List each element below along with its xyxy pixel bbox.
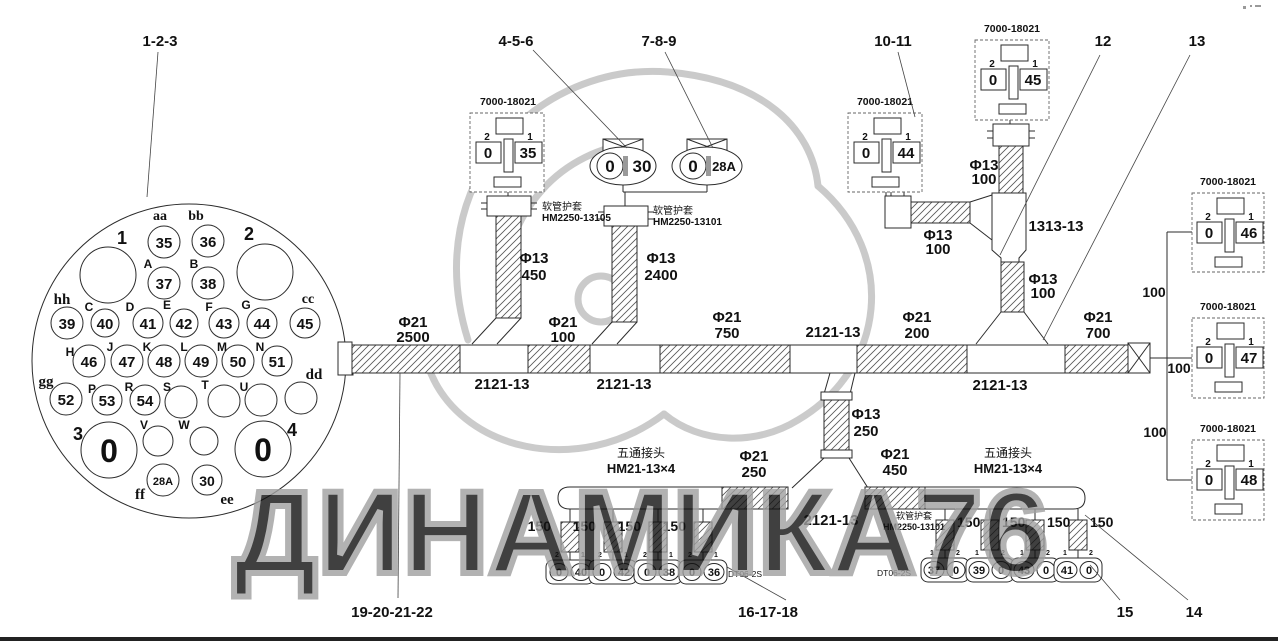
trunk-end-fitting [1128, 343, 1150, 373]
svg-text:2: 2 [1205, 459, 1211, 470]
svg-text:U: U [240, 380, 249, 394]
svg-text:52: 52 [58, 392, 75, 409]
svg-text:cc: cc [302, 292, 314, 307]
callout-12: 12 [1095, 33, 1112, 50]
svg-text:N: N [256, 340, 265, 354]
svg-text:2500: 2500 [396, 329, 429, 346]
svg-text:43: 43 [216, 316, 233, 333]
svg-text:Φ13: Φ13 [852, 406, 881, 423]
svg-text:1: 1 [1063, 550, 1067, 557]
oval-right-value: 28A [712, 159, 736, 174]
svg-text:45: 45 [1025, 72, 1042, 89]
svg-text:T: T [201, 378, 209, 392]
hole-label: 3 [73, 424, 83, 444]
svg-text:hh: hh [54, 292, 71, 308]
svg-text:36: 36 [200, 234, 217, 251]
svg-text:0: 0 [1205, 350, 1213, 367]
site-watermark: ДИНАМИКА76 [233, 467, 1048, 599]
svg-text:53: 53 [99, 393, 116, 410]
callout-4-5-6: 4-5-6 [498, 33, 533, 50]
svg-text:1: 1 [1248, 337, 1254, 348]
svg-text:45: 45 [297, 316, 314, 333]
svg-text:软管护套: 软管护套 [542, 200, 582, 213]
connector-block-46: 2 0 1 46 7000-18021 [1192, 176, 1264, 272]
oval-right-value: 30 [633, 157, 652, 176]
oval-left-value: 0 [605, 157, 614, 176]
svg-text:2: 2 [862, 132, 868, 143]
wiring-harness-diagram: 1 2 3 4 0 0 aa35 bb36 A37 B38 hh39 C40 D… [0, 0, 1278, 641]
svg-text:700: 700 [1085, 325, 1110, 342]
svg-text:250: 250 [853, 423, 878, 440]
svg-text:C: C [85, 300, 94, 314]
svg-text:A: A [144, 257, 153, 271]
svg-text:50: 50 [230, 354, 247, 371]
svg-text:150: 150 [1090, 514, 1114, 530]
svg-text:2: 2 [484, 132, 490, 143]
trunk-junction-4 [967, 345, 1065, 373]
connector-block-47: 2 0 1 47 7000-18021 [1192, 301, 1264, 398]
svg-text:五通接头: 五通接头 [617, 445, 665, 460]
svg-text:35: 35 [156, 235, 173, 252]
svg-text:1: 1 [527, 132, 533, 143]
svg-text:2121-13: 2121-13 [805, 324, 860, 341]
svg-text:W: W [178, 418, 190, 432]
svg-text:51: 51 [269, 354, 286, 371]
part-number: 7000-18021 [1200, 301, 1256, 313]
svg-text:HM2250-13101: HM2250-13101 [653, 217, 722, 228]
svg-text:2121-13: 2121-13 [596, 376, 651, 393]
y-junction-1313-13 [992, 193, 1026, 262]
svg-text:41: 41 [140, 316, 157, 333]
callout-16-17-18: 16-17-18 [738, 604, 798, 621]
callout-15: 15 [1117, 604, 1134, 621]
svg-text:K: K [143, 340, 152, 354]
svg-text:aa: aa [153, 209, 167, 224]
connector-block-48: 2 0 1 48 7000-18021 [1192, 423, 1264, 520]
svg-text:M: M [217, 340, 227, 354]
svg-text:49: 49 [193, 354, 210, 371]
svg-text:35: 35 [520, 145, 537, 162]
svg-text:L: L [180, 340, 187, 354]
part-number: 7000-18021 [480, 96, 536, 108]
svg-text:100: 100 [550, 329, 575, 346]
svg-text:2: 2 [1205, 212, 1211, 223]
svg-text:2121-13: 2121-13 [972, 377, 1027, 394]
hole-label: 2 [244, 224, 254, 244]
svg-text:0: 0 [484, 145, 492, 162]
callout-1-2-3: 1-2-3 [142, 33, 177, 50]
svg-text:P: P [88, 382, 96, 396]
part-number: 7000-18021 [1200, 176, 1256, 188]
pin-field: aa35 bb36 A37 B38 hh39 C40 D41 E42 F43 G… [39, 209, 323, 508]
svg-text:44: 44 [898, 145, 915, 162]
corner-marks [1243, 5, 1261, 9]
connector-block-44: 2 0 1 44 7000-18021 [848, 96, 922, 192]
svg-text:100: 100 [1142, 284, 1166, 300]
svg-text:S: S [163, 380, 171, 394]
callout-10-11: 10-11 [874, 33, 912, 50]
svg-text:200: 200 [904, 325, 929, 342]
svg-text:42: 42 [176, 316, 193, 333]
svg-text:450: 450 [521, 267, 546, 284]
svg-text:1: 1 [1248, 212, 1254, 223]
svg-text:bb: bb [188, 209, 204, 224]
svg-text:0: 0 [989, 72, 997, 89]
svg-text:44: 44 [254, 316, 271, 333]
svg-text:40: 40 [97, 316, 114, 333]
svg-text:150: 150 [1047, 514, 1071, 530]
trunk-junction-1 [460, 345, 528, 373]
svg-text:1313-13: 1313-13 [1028, 218, 1083, 235]
callout-14: 14 [1186, 604, 1203, 621]
hole-value: 0 [254, 432, 272, 468]
svg-text:gg: gg [39, 374, 55, 390]
svg-text:B: B [190, 257, 199, 271]
hole-label: 4 [287, 420, 297, 440]
svg-text:D: D [126, 300, 135, 314]
hole-value: 0 [100, 433, 118, 469]
oval-connector-30: 0 30 [590, 139, 656, 185]
svg-text:100: 100 [1030, 285, 1055, 302]
svg-text:软管护套: 软管护套 [653, 204, 693, 217]
svg-text:41: 41 [1061, 565, 1073, 577]
connector-block-45: 2 0 1 45 7000-18021 [975, 23, 1049, 120]
svg-text:100: 100 [1143, 424, 1167, 440]
part-number: 7000-18021 [984, 23, 1040, 35]
svg-text:2400: 2400 [644, 267, 677, 284]
svg-text:46: 46 [1241, 225, 1258, 242]
svg-text:100: 100 [971, 171, 996, 188]
svg-text:Φ21: Φ21 [1084, 309, 1113, 326]
svg-text:Φ21: Φ21 [881, 446, 910, 463]
svg-text:28A: 28A [153, 476, 173, 488]
svg-text:五通接头: 五通接头 [984, 445, 1032, 460]
svg-text:2: 2 [1089, 550, 1093, 557]
svg-text:0: 0 [1205, 225, 1213, 242]
callout-7-8-9: 7-8-9 [641, 33, 676, 50]
svg-text:54: 54 [137, 393, 154, 410]
trunk-junction-3 [790, 345, 857, 373]
main-trunk [338, 342, 1150, 375]
svg-text:48: 48 [156, 354, 173, 371]
svg-text:E: E [163, 298, 171, 312]
oval-connector-28A: 0 28A [672, 139, 742, 185]
svg-text:2121-13: 2121-13 [474, 376, 529, 393]
part-number: 7000-18021 [1200, 423, 1256, 435]
bottom-edge-bar [0, 637, 1278, 641]
svg-text:37: 37 [156, 276, 173, 293]
svg-text:Φ13: Φ13 [520, 250, 549, 267]
hole-label: 1 [117, 228, 127, 248]
svg-text:ff: ff [135, 487, 146, 503]
svg-text:46: 46 [81, 354, 98, 371]
svg-text:Φ13: Φ13 [647, 250, 676, 267]
svg-text:38: 38 [200, 276, 217, 293]
svg-text:30: 30 [199, 473, 215, 489]
svg-text:2: 2 [989, 59, 995, 70]
part-number: 7000-18021 [857, 96, 913, 108]
svg-text:750: 750 [714, 325, 739, 342]
svg-text:1: 1 [1248, 459, 1254, 470]
svg-text:Φ21: Φ21 [740, 448, 769, 465]
svg-text:1: 1 [905, 132, 911, 143]
trunk-junction-2 [590, 345, 660, 373]
svg-text:0: 0 [1205, 472, 1213, 489]
svg-text:G: G [241, 298, 250, 312]
callout-19-20-21-22: 19-20-21-22 [351, 604, 433, 621]
svg-text:H: H [66, 345, 75, 359]
oval-left-value: 0 [688, 157, 697, 176]
svg-text:48: 48 [1241, 472, 1258, 489]
svg-text:R: R [125, 380, 134, 394]
svg-text:39: 39 [59, 316, 76, 333]
svg-text:2: 2 [1205, 337, 1211, 348]
svg-text:V: V [140, 418, 148, 432]
svg-text:100: 100 [925, 241, 950, 258]
svg-text:HM2250-13105: HM2250-13105 [542, 213, 611, 224]
svg-text:100: 100 [1167, 360, 1191, 376]
svg-text:Φ21: Φ21 [713, 309, 742, 326]
svg-text:47: 47 [1241, 350, 1258, 367]
svg-text:0: 0 [862, 145, 870, 162]
svg-text:F: F [205, 300, 212, 314]
svg-text:J: J [107, 340, 114, 354]
svg-text:dd: dd [306, 367, 323, 383]
svg-text:47: 47 [119, 354, 136, 371]
svg-text:ee: ee [220, 492, 234, 508]
callout-13: 13 [1189, 33, 1206, 50]
svg-text:Φ21: Φ21 [903, 309, 932, 326]
right-bracket [1150, 232, 1192, 480]
svg-text:1: 1 [1032, 59, 1038, 70]
